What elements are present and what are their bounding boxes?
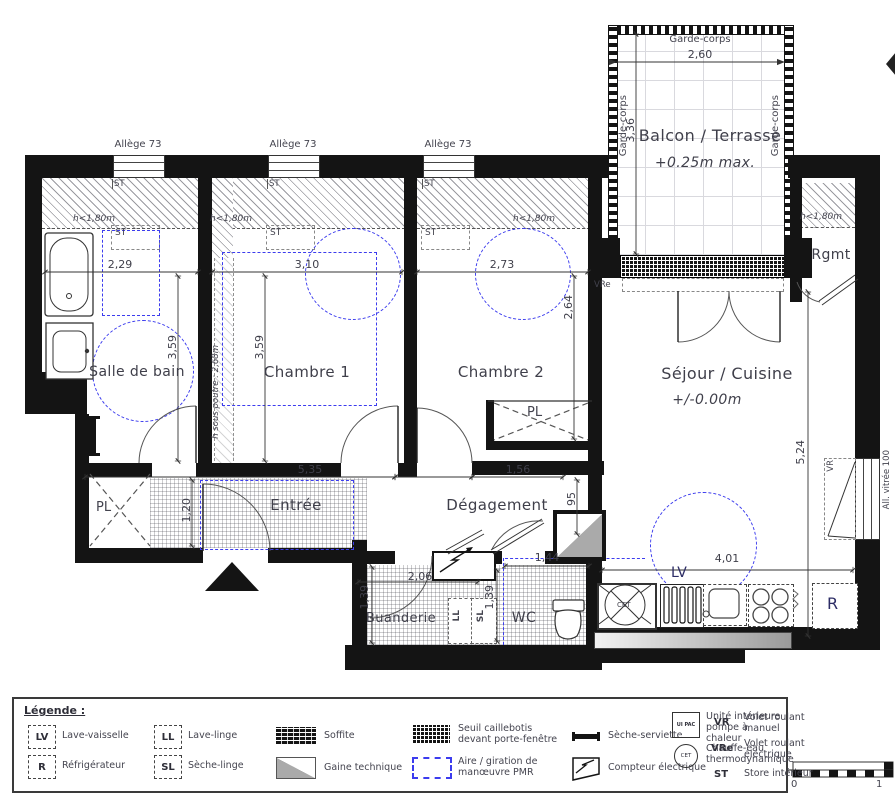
- compteur-glyph: [572, 757, 600, 781]
- room-label-balcon: Balcon / Terrasse: [639, 126, 781, 145]
- legend-compteur-icon: [572, 757, 600, 781]
- dim-ch1-w: 3,10: [295, 258, 320, 271]
- st-label-box-3: ST: [425, 228, 436, 238]
- dim-degagement-w: 1,56: [506, 463, 531, 476]
- dim-buanderie-w: 2,06: [408, 570, 433, 583]
- h180-label-1: h<1,80m: [73, 214, 115, 224]
- room-label-ch1: Chambre 1: [264, 363, 350, 381]
- dim-degagement-h: 95: [565, 492, 578, 506]
- st-label-box-1: ST: [115, 228, 126, 238]
- h180-label-2: h<1,80m: [210, 214, 252, 224]
- ss-cap-l: [572, 732, 575, 741]
- dim-buanderie-h: 1,39: [358, 585, 371, 610]
- dim-balcon-h: 3,36: [624, 118, 637, 143]
- room-label-degagement: Dégagement: [446, 496, 547, 514]
- legend-sl-label: Sèche-linge: [188, 761, 244, 772]
- legend-title: Légende :: [24, 704, 85, 717]
- st-label-top-1: ST: [112, 179, 125, 189]
- room-label-buanderie: Buanderie: [366, 611, 436, 626]
- floor-plan: Allège 73 Allège 73 Allège 73 Garde-corp…: [0, 0, 895, 800]
- room-level-sejour: +/-0.00m: [672, 392, 742, 408]
- allege-label-1: Allège 73: [115, 139, 162, 150]
- room-label-sejour: Séjour / Cuisine: [661, 364, 792, 383]
- legend-lv-label: Lave-vaisselle: [62, 731, 129, 742]
- st-label-top-2: ST: [267, 179, 280, 189]
- legend-gaine-label: Gaine technique: [324, 763, 402, 774]
- pl-label-ch2: PL: [527, 405, 542, 420]
- scale-one: 1: [876, 779, 882, 790]
- room-label-wc: WC: [512, 610, 536, 626]
- legend-r-label: Réfrigérateur: [62, 761, 125, 772]
- legend-sl-icon: SL: [154, 755, 182, 779]
- legend-gaine-icon: [276, 757, 316, 779]
- ss-bar: [575, 734, 597, 739]
- garde-corps-label-top: Garde-corps: [669, 34, 730, 45]
- ss-cap-r: [597, 732, 600, 741]
- st-label-top-3: ST: [422, 179, 435, 189]
- legend-ll-label: Lave-linge: [188, 731, 237, 742]
- pl-label-entree: PL: [96, 500, 111, 515]
- legend-cet-label: Chauffe-eau thermodynamique: [706, 744, 784, 766]
- room-label-entree: Entrée: [270, 496, 322, 514]
- dim-sdb-w: 2,29: [108, 258, 133, 271]
- room-label-ch2: Chambre 2: [458, 363, 544, 381]
- legend-pmr-icon: [412, 757, 452, 779]
- allege-label-2: Allège 73: [270, 139, 317, 150]
- vre-label: VRe: [594, 280, 611, 290]
- sl-label: SL: [476, 610, 486, 622]
- legend-pmr-label: Aire / giration de manœuvre PMR: [458, 757, 558, 779]
- dim-sdb-h: 3,59: [166, 335, 179, 360]
- dim-ch2-w: 2,73: [490, 258, 515, 271]
- r-label: R: [827, 594, 838, 613]
- room-label-rgmt: Rgmt: [811, 247, 850, 263]
- allege-label-3: Allège 73: [425, 139, 472, 150]
- h-sous-poutre-label: h sous poutre : 2,68m: [211, 345, 221, 439]
- room-label-sdb: Salle de bain: [89, 364, 185, 380]
- all-vitree-label: All. vitrée 100: [882, 450, 892, 509]
- dim-entree-w: 5,35: [298, 463, 323, 476]
- vr-label: VR: [826, 460, 836, 472]
- cet-label: CET: [617, 601, 631, 609]
- legend-caillebotis-icon: [412, 725, 450, 744]
- dim-wc-h: 1,39: [483, 585, 496, 610]
- dim-wc-w: 1,44: [535, 551, 560, 564]
- h180-label-rgmt: h<1,80m: [800, 212, 842, 222]
- legend-seche-serviette-icon: [572, 731, 600, 741]
- dim-ch2-h: 2,64: [562, 295, 575, 320]
- plan-linework: [0, 0, 895, 800]
- legend-caillebotis-label: Seuil caillebotis devant porte-fenêtre: [458, 724, 563, 746]
- st-label-box-2: ST: [270, 228, 281, 238]
- dim-balcon-w: 2,60: [688, 48, 713, 61]
- room-level-balcon: +0.25m max.: [655, 155, 755, 171]
- h180-label-3: h<1,80m: [513, 214, 555, 224]
- dim-sejour-h: 5,24: [794, 440, 807, 465]
- legend-lv-icon: LV: [28, 725, 56, 749]
- lv-label: LV: [671, 565, 687, 581]
- legend-ll-icon: LL: [154, 725, 182, 749]
- dim-sejour-w: 4,01: [715, 552, 740, 565]
- scale-zero: 0: [791, 779, 797, 790]
- legend-r-icon: R: [28, 755, 56, 779]
- legend-st-label: Store intérieur: [744, 769, 824, 780]
- dim-entree-h: 1,20: [180, 498, 193, 523]
- legend-cet-icon: CET: [674, 744, 698, 768]
- legend-soffite-icon: [276, 727, 316, 744]
- legend-uipac-icon: UI PAC: [672, 712, 700, 738]
- ll-label: LL: [452, 610, 462, 621]
- legend-uipac-label: Unité intérieure pompe à chaleur: [706, 712, 784, 745]
- legend-st-key: ST: [714, 769, 728, 780]
- legend-soffite-label: Soffite: [324, 731, 355, 742]
- dim-ch1-h: 3,59: [253, 335, 266, 360]
